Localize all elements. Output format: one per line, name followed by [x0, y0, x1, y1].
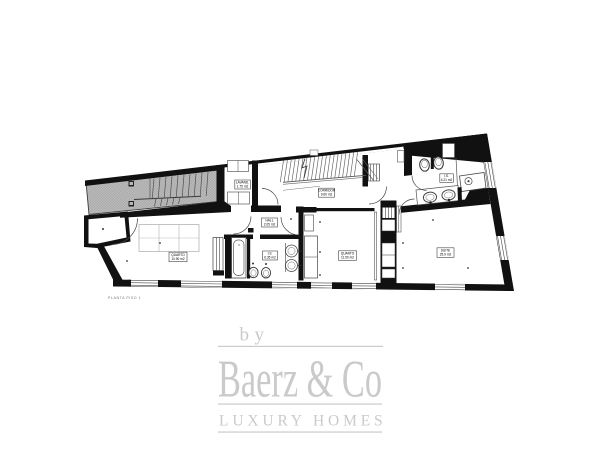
svg-text:2.05 m2: 2.05 m2: [264, 222, 276, 226]
svg-text:25.9 m2: 25.9 m2: [440, 252, 452, 256]
svg-text:Baerz & Co: Baerz & Co: [218, 351, 382, 409]
svg-text:10.90 m2: 10.90 m2: [171, 257, 185, 261]
svg-text:by: by: [240, 325, 270, 346]
svg-text:9.60 m2: 9.60 m2: [321, 193, 333, 197]
svg-text:PLANTA PISO 1: PLANTA PISO 1: [108, 296, 141, 300]
svg-text:6.35 m2: 6.35 m2: [264, 255, 276, 259]
svg-text:4.21 m2: 4.21 m2: [441, 178, 453, 182]
svg-text:11.50 m2: 11.50 m2: [341, 255, 354, 259]
svg-text:LUXURY HOMES: LUXURY HOMES: [219, 413, 386, 430]
svg-text:1.75 m2: 1.75 m2: [237, 184, 249, 188]
